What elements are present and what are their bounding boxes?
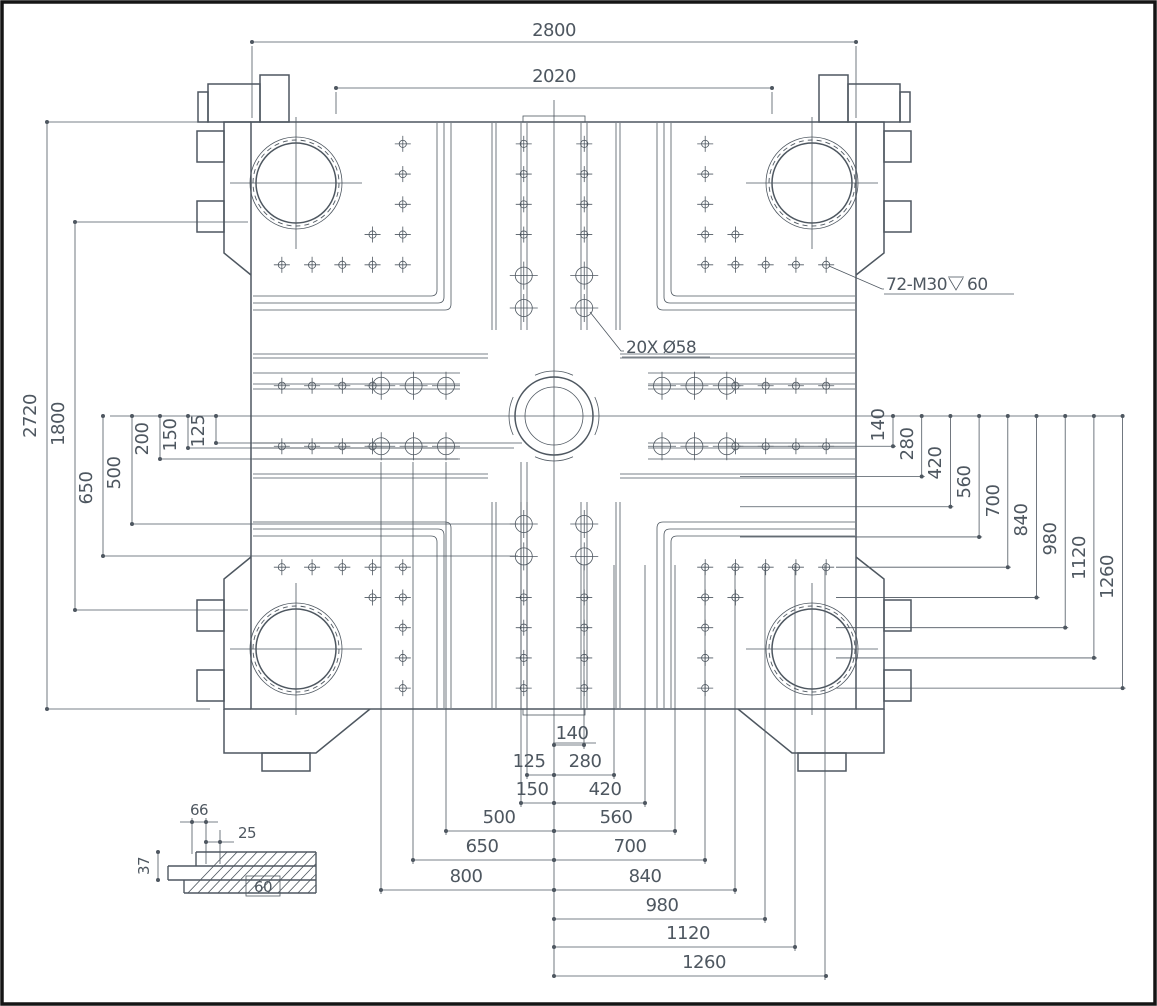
dim-left-500: 500	[104, 457, 125, 490]
dim-right-1260: 1260	[1097, 555, 1118, 599]
t-slot-section-detail: 66 25 37 60	[135, 801, 359, 896]
detail-dim-37: 37	[135, 857, 153, 875]
bottom-right-lug	[798, 753, 846, 771]
dim-bottom-420: 420	[589, 779, 622, 800]
side-tab	[884, 670, 911, 701]
dim-bottom-500: 500	[483, 807, 516, 828]
corner-block-top-left	[224, 122, 251, 275]
dim-bottom-150: 150	[516, 779, 549, 800]
top-left-lug	[260, 75, 289, 122]
thread-callout-text: 72-M30	[886, 275, 947, 295]
dim-bottom-1260: 1260	[682, 952, 726, 973]
dim-top-2800: 2800	[532, 20, 576, 41]
hole-callout-text: 20X Ø58	[626, 338, 696, 358]
dim-top-2020: 2020	[532, 66, 576, 87]
depth-symbol-icon	[948, 277, 964, 290]
dim-left-200: 200	[132, 423, 153, 456]
platen-technical-drawing: 72-M30 60 20X Ø58 66 25 37	[0, 0, 1157, 1006]
dim-bottom-980: 980	[646, 895, 679, 916]
dim-right-140: 140	[868, 409, 889, 442]
side-tab	[884, 600, 911, 631]
dim-bottom-800: 800	[450, 866, 483, 887]
detail-dim-25: 25	[238, 824, 256, 842]
dim-bottom-650: 650	[466, 836, 499, 857]
bottom-left-foot	[224, 709, 370, 753]
dim-right-980: 980	[1040, 523, 1061, 556]
dim-right-700: 700	[983, 485, 1004, 518]
side-tab	[884, 201, 911, 232]
dim-bottom-140: 140	[556, 723, 589, 744]
thread-callout-depth: 60	[967, 275, 988, 295]
dim-left-650: 650	[76, 472, 97, 505]
dim-right-560: 560	[954, 466, 975, 499]
bottom-left-lug	[262, 753, 310, 771]
bottom-right-foot	[738, 709, 884, 753]
dim-right-420: 420	[925, 447, 946, 480]
side-tab	[197, 131, 224, 162]
dim-right-280: 280	[897, 428, 918, 461]
dim-bottom-560: 560	[600, 807, 633, 828]
side-tab	[884, 131, 911, 162]
corner-block-bottom-right	[856, 557, 884, 709]
drawing-sheet: 72-M30 60 20X Ø58 66 25 37	[0, 0, 1157, 1006]
dim-bottom-125: 125	[513, 751, 546, 772]
dim-bottom-280: 280	[569, 751, 602, 772]
detail-dim-66: 66	[190, 801, 208, 819]
dim-bottom-700: 700	[614, 836, 647, 857]
dim-bottom-1120: 1120	[666, 923, 710, 944]
hole-callout-leader	[590, 312, 624, 351]
dim-left-2720: 2720	[20, 394, 41, 438]
top-left-lug-step	[198, 92, 208, 122]
dim-left-1800: 1800	[48, 402, 69, 446]
top-right-lug-step	[900, 92, 910, 122]
dim-right-1120: 1120	[1069, 536, 1090, 580]
side-tab	[197, 670, 224, 701]
detail-dim-60: 60	[254, 878, 272, 896]
dimension-lines	[45, 40, 1126, 980]
corner-block-top-right	[856, 122, 884, 275]
side-tab	[197, 201, 224, 232]
section-hatching	[186, 850, 359, 895]
dim-left-125: 125	[188, 415, 209, 448]
dimension-labels: 2800 2020 2720 1800 650 500 200 150 125 …	[20, 20, 1118, 973]
dim-left-150: 150	[160, 419, 181, 452]
side-tab	[197, 600, 224, 631]
dim-right-840: 840	[1011, 504, 1032, 537]
leader-annotations: 72-M30 60 20X Ø58	[590, 266, 1014, 358]
top-right-lug	[819, 75, 848, 122]
corner-block-bottom-left	[224, 557, 251, 709]
dim-bottom-840: 840	[629, 866, 662, 887]
